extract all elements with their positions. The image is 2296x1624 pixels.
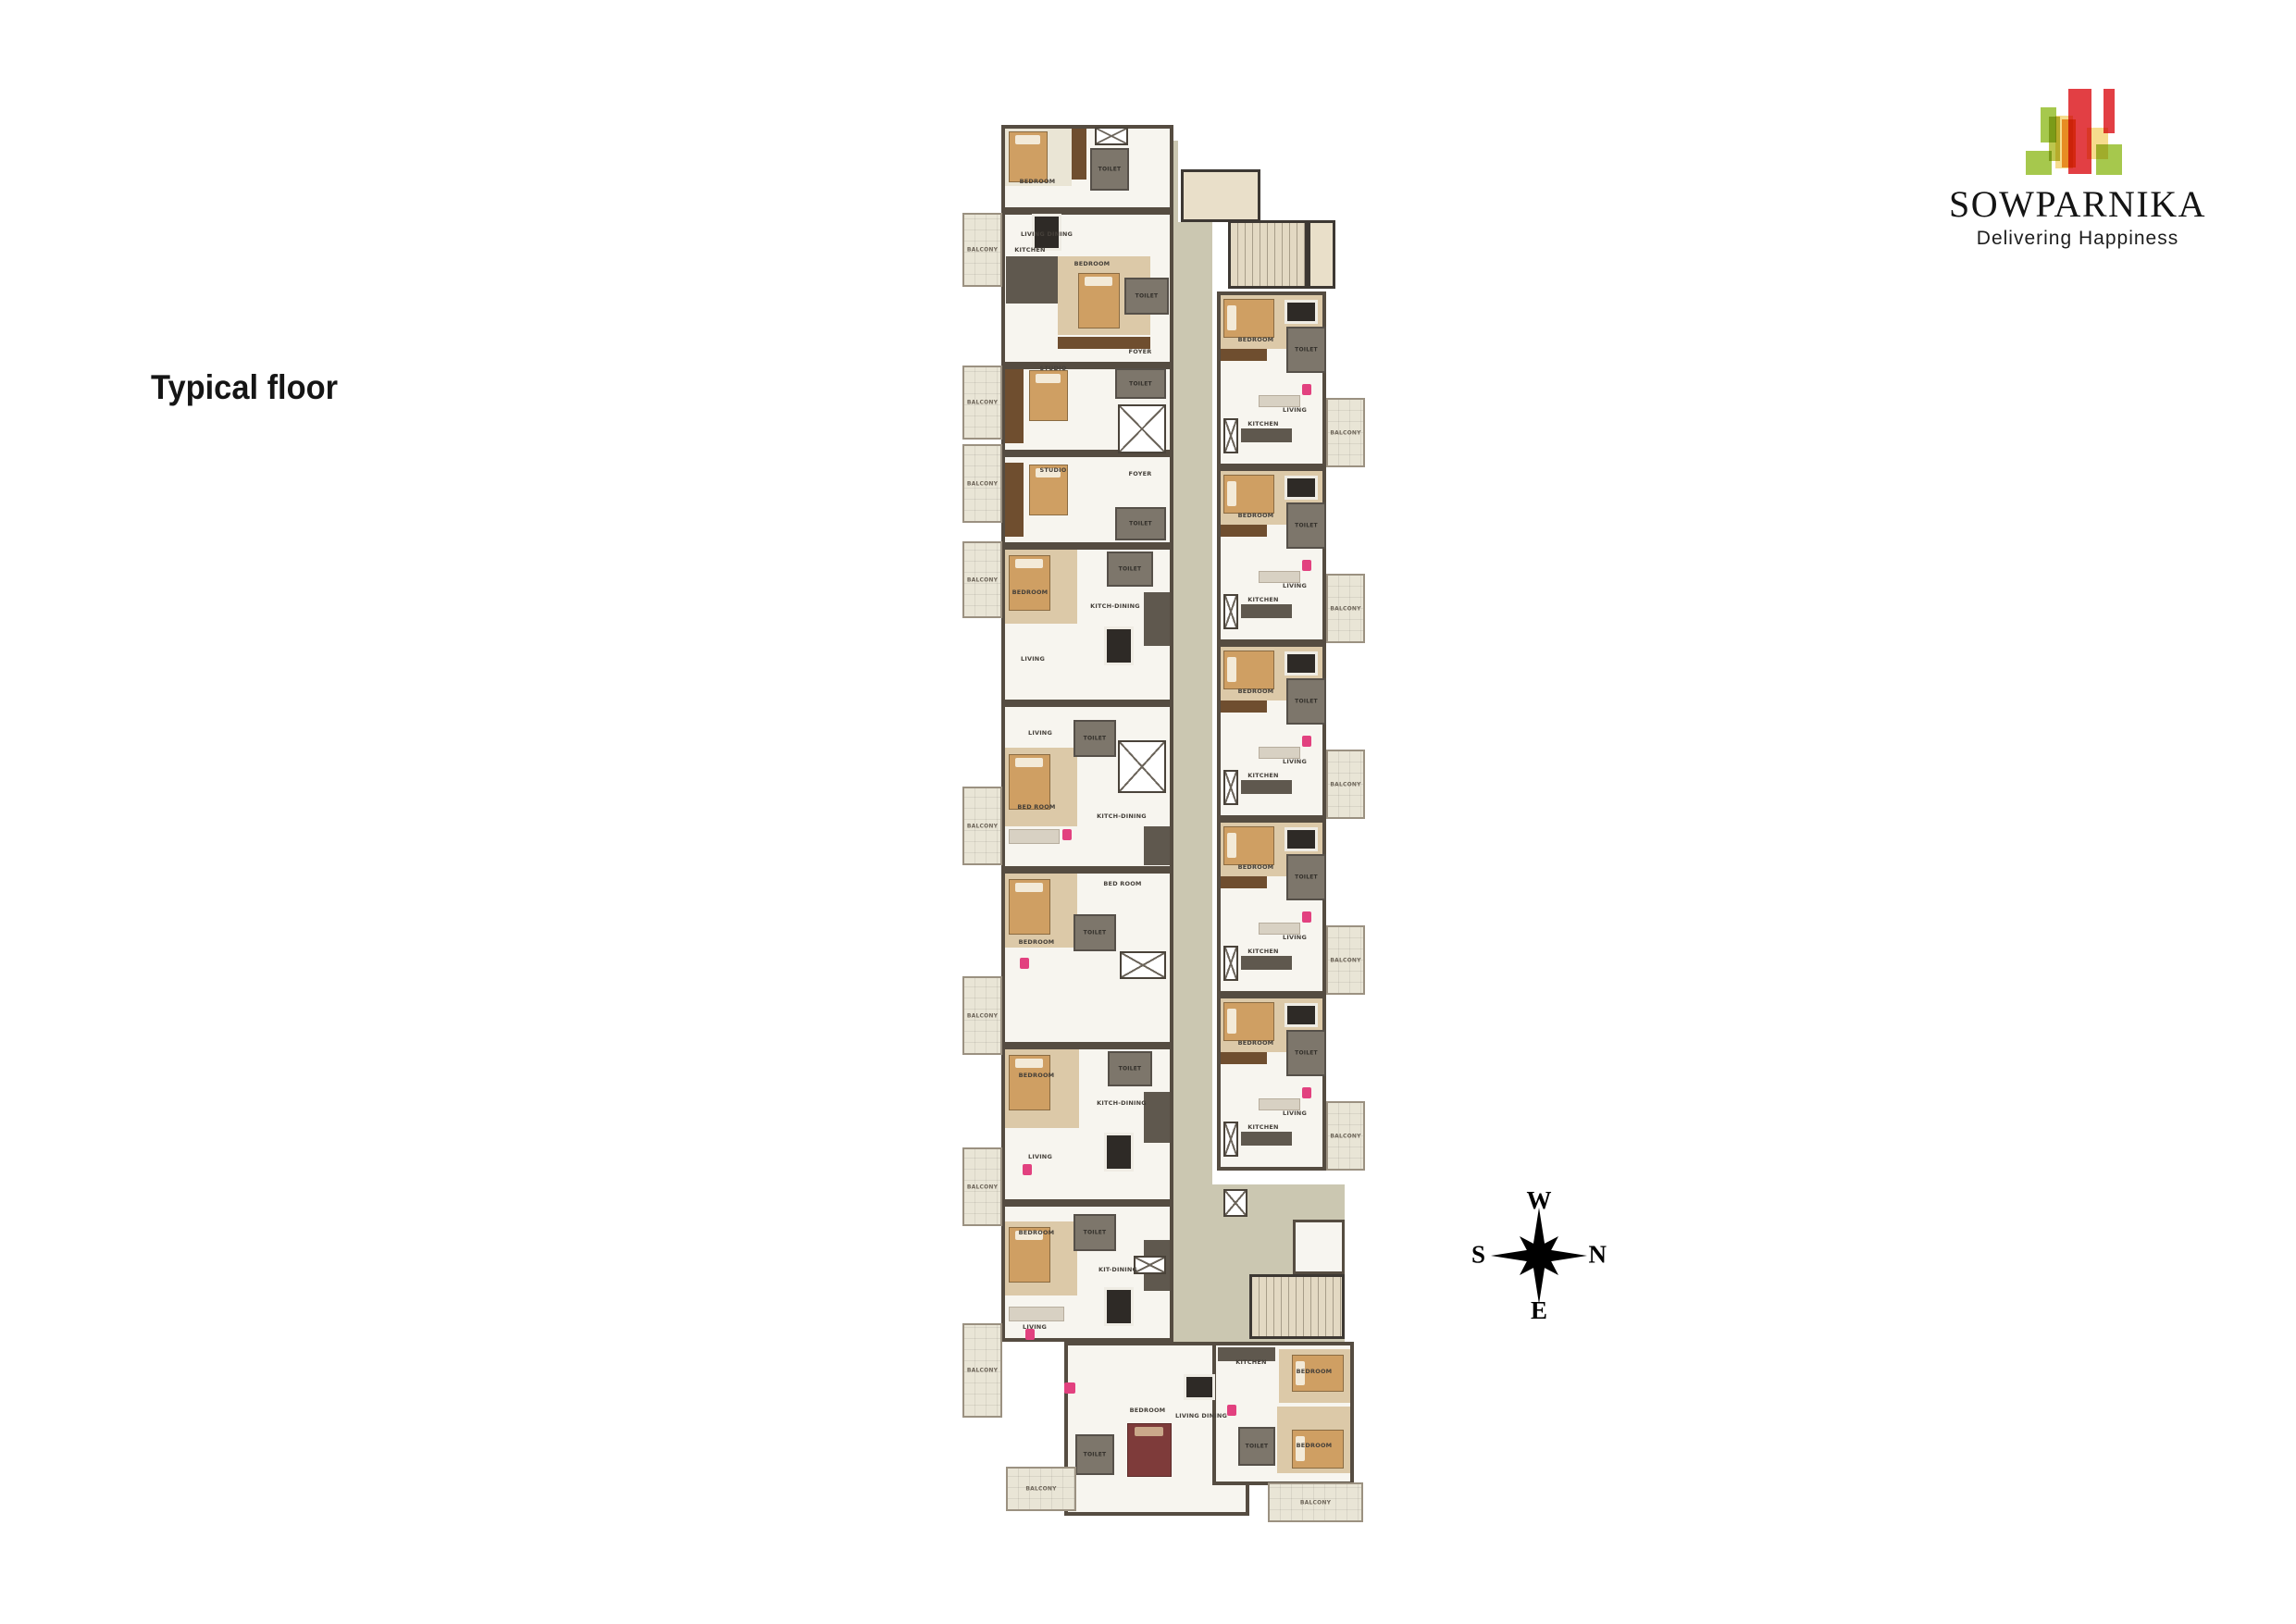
room-label: TOILET <box>1295 1050 1318 1057</box>
fp-terrace <box>1181 169 1260 222</box>
fp-balcony: BALCONY <box>962 213 1002 287</box>
fp-pink <box>1064 1382 1075 1394</box>
room-label: BEDROOM <box>1297 1368 1333 1375</box>
fp-balcony: BALCONY <box>962 541 1002 618</box>
fp-counter <box>1144 592 1170 646</box>
room-label: BEDROOM <box>1238 512 1274 519</box>
brand-bars <box>2026 89 2129 177</box>
fp-bed-v <box>1009 555 1050 611</box>
fp-table <box>1287 1006 1315 1024</box>
room-label: KITCHEN <box>1247 1123 1278 1131</box>
fp-bed-h <box>1223 475 1274 514</box>
room-label: BALCONY <box>1330 429 1360 436</box>
room-label: BEDROOM <box>1130 1407 1166 1414</box>
room-label: BEDROOM <box>1074 260 1111 267</box>
fp-lift <box>1223 594 1238 629</box>
room-label: BALCONY <box>967 247 998 254</box>
room-label: TOILET <box>1246 1444 1269 1450</box>
room-label: TOILET <box>1129 380 1152 387</box>
room-label: BALCONY <box>1025 1486 1056 1493</box>
fp-table <box>1186 1377 1212 1397</box>
room-label: BEDROOM <box>1019 1072 1055 1079</box>
room-label: KITCHEN <box>1247 772 1278 779</box>
room-label: TOILET <box>1129 521 1152 527</box>
room-label: TOILET <box>1084 930 1107 936</box>
fp-bed-h <box>1292 1430 1344 1469</box>
fp-wardrobe <box>1221 349 1267 361</box>
fp-counter <box>1241 428 1292 442</box>
room-label: BEDROOM <box>1238 336 1274 343</box>
fp-pink <box>1302 560 1311 571</box>
fp-bed-h <box>1223 826 1274 865</box>
fp-lift <box>1118 740 1166 793</box>
fp-lift <box>1223 1122 1238 1157</box>
room-label: BALCONY <box>1300 1499 1331 1506</box>
room-label: LIVING <box>1028 1153 1052 1160</box>
compass-letter-left: S <box>1471 1240 1485 1269</box>
room-label: BEDROOM <box>1012 589 1049 596</box>
room-label: BALCONY <box>1330 781 1360 787</box>
room-label: LIVING <box>1283 406 1307 414</box>
fp-bed-v <box>1009 1055 1050 1110</box>
room-label: LIVING <box>1023 1323 1047 1331</box>
fp-wardrobe <box>1005 369 1024 443</box>
room-label: LIVING <box>1283 934 1307 941</box>
compass-letter-top: W <box>1527 1186 1552 1215</box>
fp-balcony: BALCONY <box>962 787 1002 865</box>
fp-counter <box>1241 1132 1292 1146</box>
room-label: STUDIO <box>1040 365 1067 372</box>
room-label: BED ROOM <box>1017 803 1055 811</box>
room-label: TOILET <box>1084 1452 1107 1458</box>
room-label: BEDROOM <box>1297 1442 1333 1449</box>
fp-balcony: BALCONY <box>1268 1482 1363 1522</box>
fp-room <box>1293 1220 1345 1274</box>
fp-lift <box>1223 946 1238 981</box>
fp-pink <box>1302 384 1311 395</box>
logo-bar <box>2026 151 2052 175</box>
compass-letter-bottom: E <box>1531 1296 1547 1325</box>
fp-balcony: BALCONY <box>962 1147 1002 1226</box>
room-label: BALCONY <box>967 823 998 829</box>
room-label: KITCH-DINING <box>1090 602 1140 610</box>
fp-table <box>1107 1135 1131 1169</box>
room-label: FOYER <box>1129 470 1152 477</box>
fp-stairs-v <box>1228 220 1308 289</box>
fp-toilet: TOILET <box>1286 678 1326 725</box>
room-label: KITCHEN <box>1247 420 1278 428</box>
fp-balcony: BALCONY <box>1326 1101 1365 1171</box>
fp-bed-h <box>1223 651 1274 689</box>
fp-table <box>1107 629 1131 663</box>
fp-pink <box>1023 1164 1032 1175</box>
fp-bed-h <box>1223 299 1274 338</box>
fp-wardrobe <box>1005 463 1024 537</box>
fp-bed-v <box>1009 879 1050 935</box>
fp-balcony: BALCONY <box>1326 925 1365 995</box>
fp-lift <box>1095 127 1128 145</box>
room-label: LIVING DINING <box>1175 1412 1227 1419</box>
fp-pink <box>1227 1405 1236 1416</box>
fp-toilet: TOILET <box>1075 1434 1114 1475</box>
room-label: TOILET <box>1098 167 1122 173</box>
room-label: BALCONY <box>967 400 998 406</box>
fp-table <box>1287 830 1315 849</box>
fp-balcony: BALCONY <box>1326 750 1365 819</box>
fp-toilet: TOILET <box>1074 720 1116 757</box>
fp-counter <box>1241 604 1292 618</box>
room-label: TOILET <box>1084 736 1107 742</box>
room-label: KITCHEN <box>1235 1358 1266 1366</box>
room-label: TOILET <box>1119 566 1142 573</box>
fp-bed-v <box>1009 131 1048 182</box>
brand-tagline: Delivering Happiness <box>1930 228 2226 250</box>
fp-pink <box>1020 958 1029 969</box>
room-label: TOILET <box>1295 699 1318 705</box>
fp-balcony: BALCONY <box>1006 1467 1076 1511</box>
fp-toilet: TOILET <box>1074 1214 1116 1251</box>
fp-wardrobe <box>1221 876 1267 888</box>
room-label: BALCONY <box>1330 957 1360 963</box>
fp-counter <box>1144 1092 1170 1143</box>
room-label: TOILET <box>1119 1066 1142 1072</box>
fp-table <box>1287 303 1315 321</box>
fp-balcony: BALCONY <box>1326 574 1365 643</box>
fp-bed-v <box>1078 273 1120 329</box>
compass-letter-right: N <box>1589 1240 1607 1269</box>
room-label: BEDROOM <box>1019 938 1055 946</box>
room-label: BALCONY <box>1330 1133 1360 1139</box>
fp-pink <box>1302 911 1311 923</box>
fp-balcony: BALCONY <box>962 444 1002 523</box>
fp-balcony: BALCONY <box>962 976 1002 1055</box>
fp-wardrobe <box>1221 1052 1267 1064</box>
room-label: BED ROOM <box>1103 880 1141 887</box>
fp-balcony: BALCONY <box>962 1323 1002 1418</box>
fp-lift <box>1118 404 1166 453</box>
room-label: KITCH-DINING <box>1097 1099 1147 1107</box>
fp-counter <box>1241 780 1292 794</box>
room-label: KITCHEN <box>1247 948 1278 955</box>
room-label: TOILET <box>1295 523 1318 529</box>
fp-bed-v <box>1029 370 1068 421</box>
room-label: BALCONY <box>967 1184 998 1190</box>
room-label: BALCONY <box>967 1012 998 1019</box>
room-label: BALCONY <box>1330 605 1360 612</box>
fp-lift <box>1223 418 1238 453</box>
fp-toilet: TOILET <box>1108 1051 1152 1086</box>
fp-balcony: BALCONY <box>1326 398 1365 467</box>
room-label: LIVING DINING <box>1021 230 1073 238</box>
fp-counter <box>1006 256 1058 304</box>
fp-toilet: TOILET <box>1286 1030 1326 1076</box>
room-label: TOILET <box>1084 1230 1107 1236</box>
room-label: LIVING <box>1021 655 1045 663</box>
room-label: BALCONY <box>967 1368 998 1374</box>
room-label: BALCONY <box>967 576 998 583</box>
brand-name: SOWPARNIKA <box>1930 186 2226 223</box>
fp-pink <box>1302 736 1311 747</box>
fp-toilet: TOILET <box>1090 148 1129 191</box>
fp-pink <box>1062 829 1072 840</box>
room-label: TOILET <box>1295 874 1318 881</box>
room-label: TOILET <box>1136 293 1159 300</box>
compass-rose: W N S E <box>1470 1186 1608 1325</box>
room-label: LIVING <box>1283 758 1307 765</box>
room-label: LIVING <box>1028 729 1052 737</box>
room-label: STUDIO <box>1040 466 1067 474</box>
room-label: TOILET <box>1295 347 1318 353</box>
fp-pink <box>1302 1087 1311 1098</box>
logo-bar <box>2104 89 2115 133</box>
room-label: BEDROOM <box>1019 1229 1055 1236</box>
fp-corridor <box>1168 222 1212 1189</box>
fp-counter <box>1241 956 1292 970</box>
fp-lift <box>1134 1256 1166 1274</box>
fp-sofa <box>1009 829 1060 844</box>
fp-toilet: TOILET <box>1286 854 1326 900</box>
fp-counter <box>1144 826 1170 865</box>
brand-logo: SOWPARNIKA Delivering Happiness <box>1930 89 2226 250</box>
fp-lift <box>1120 951 1166 979</box>
fp-wardrobe <box>1221 525 1267 537</box>
fp-toilet: TOILET <box>1074 914 1116 951</box>
fp-table <box>1107 1290 1131 1323</box>
fp-lift <box>1223 1189 1247 1217</box>
room-label: LIVING <box>1283 582 1307 589</box>
fp-table <box>1287 478 1315 497</box>
fp-sofa <box>1009 1307 1064 1321</box>
room-label: KITCHEN <box>1247 596 1278 603</box>
room-label: BEDROOM <box>1238 1039 1274 1047</box>
room-label: LIVING <box>1283 1110 1307 1117</box>
room-label: BALCONY <box>967 480 998 487</box>
fp-wardrobe <box>1072 129 1086 180</box>
room-label: KIT-DINING <box>1098 1266 1137 1273</box>
fp-wardrobe <box>1221 700 1267 713</box>
fp-stairs-v <box>1249 1274 1345 1339</box>
fp-toilet: TOILET <box>1286 502 1326 549</box>
logo-bar <box>2096 144 2122 175</box>
fp-lift <box>1223 770 1238 805</box>
fp-toilet: TOILET <box>1286 327 1326 373</box>
fp-toilet: TOILET <box>1115 368 1166 399</box>
fp-table <box>1287 654 1315 673</box>
fp-bed-red <box>1127 1423 1172 1477</box>
room-label: KITCHEN <box>1014 246 1045 254</box>
room-label: BEDROOM <box>1020 178 1056 185</box>
fp-bed-v <box>1009 754 1050 810</box>
fp-toilet: TOILET <box>1115 507 1166 540</box>
fp-toilet: TOILET <box>1124 278 1169 315</box>
room-label: FOYER <box>1129 348 1152 355</box>
room-label: BEDROOM <box>1238 863 1274 871</box>
fp-toilet: TOILET <box>1238 1427 1275 1466</box>
fp-balcony: BALCONY <box>962 366 1002 440</box>
fp-bed-h <box>1223 1002 1274 1041</box>
room-label: KITCH-DINING <box>1097 812 1147 820</box>
fp-toilet: TOILET <box>1107 552 1153 587</box>
fp-terrace <box>1308 220 1335 289</box>
room-label: BEDROOM <box>1238 688 1274 695</box>
